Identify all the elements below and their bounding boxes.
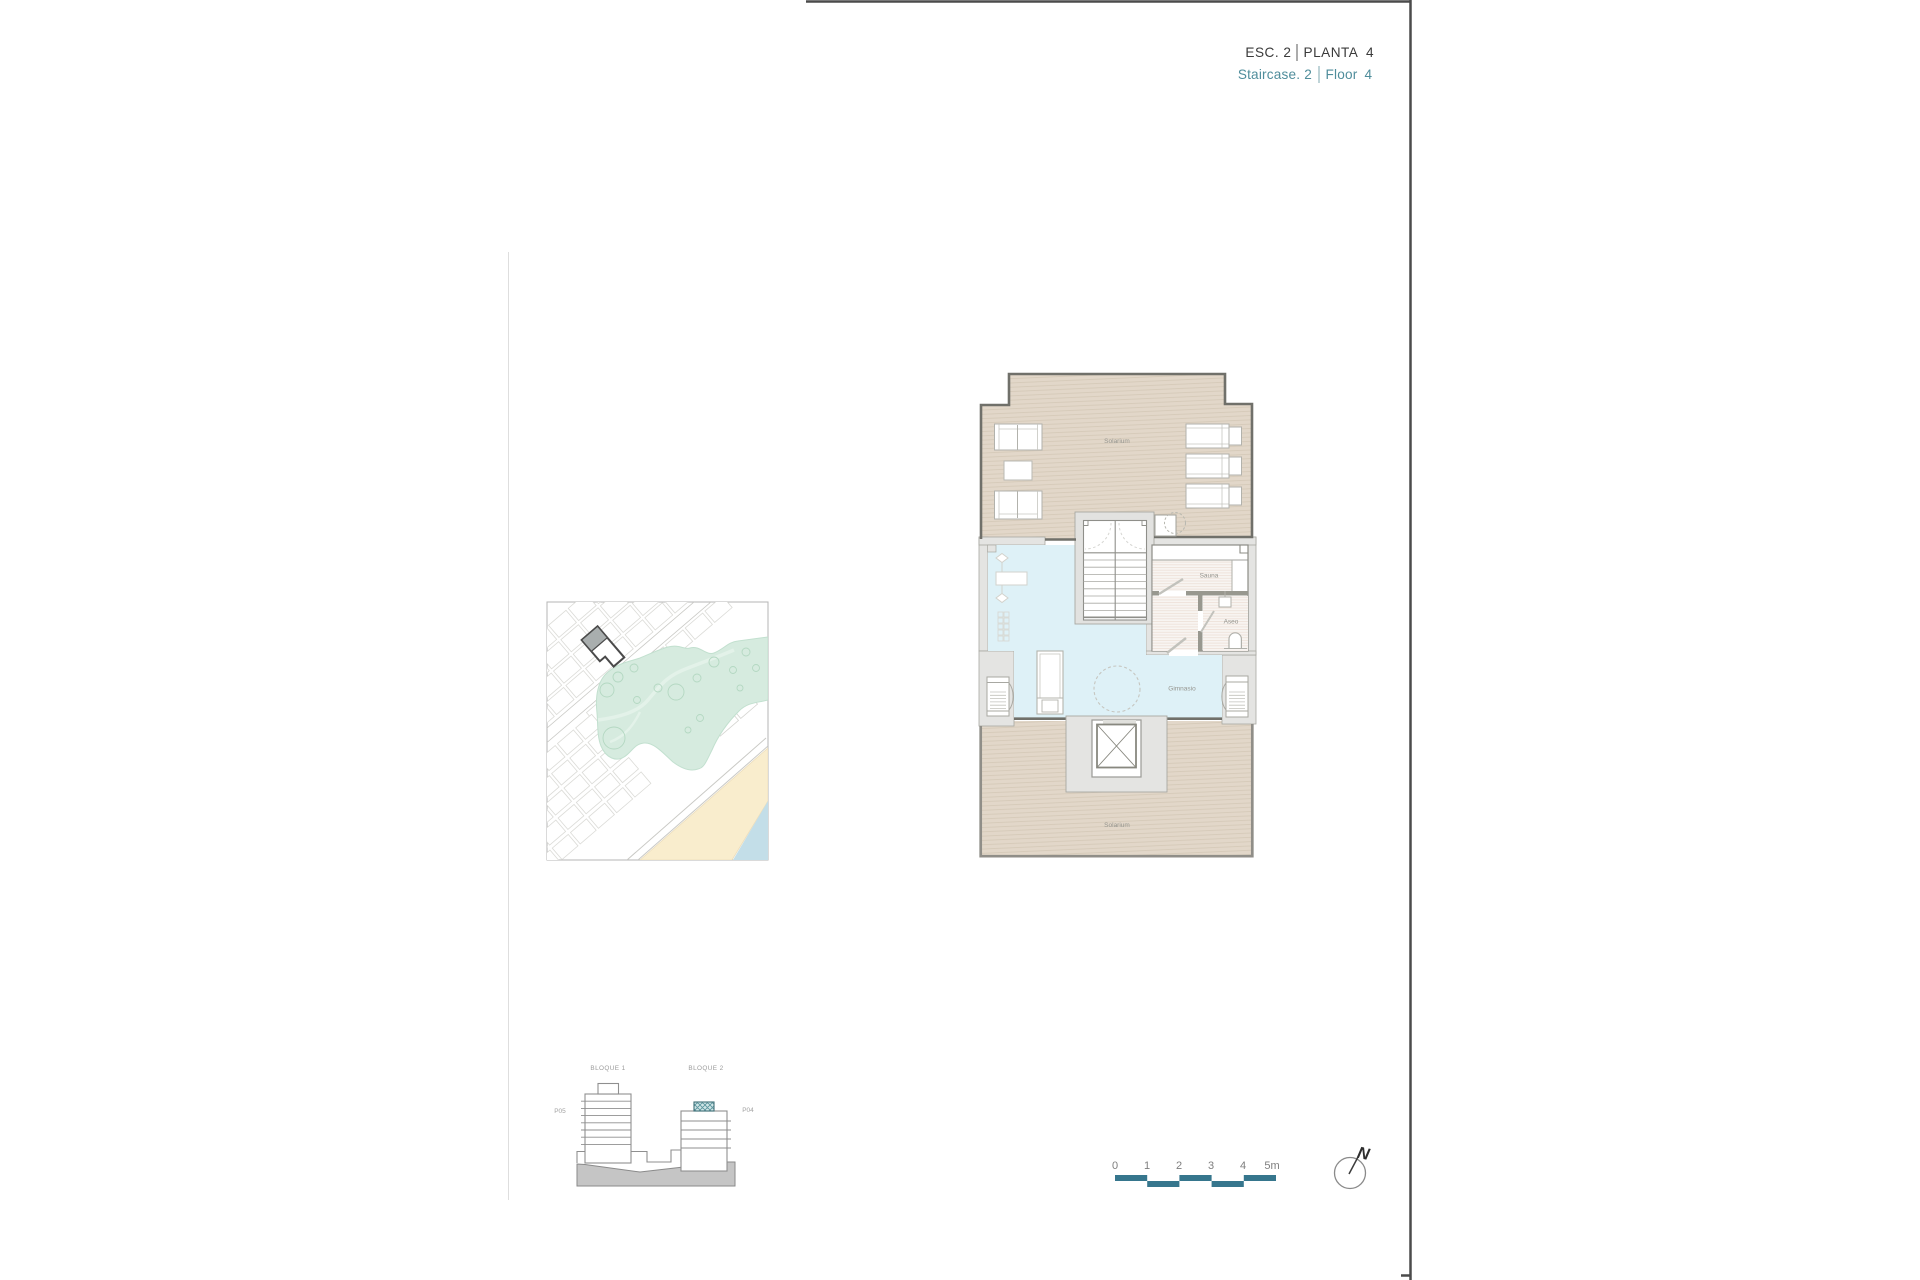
svg-text:1: 1 xyxy=(1144,1160,1150,1172)
svg-text:Aseo: Aseo xyxy=(1224,619,1239,626)
svg-text:2: 2 xyxy=(1176,1160,1182,1172)
svg-text:Gimnasio: Gimnasio xyxy=(1168,686,1196,693)
svg-text:0: 0 xyxy=(1112,1160,1118,1172)
svg-text:ESC. 2: ESC. 2 xyxy=(1245,45,1291,60)
svg-text:4: 4 xyxy=(1366,45,1374,60)
svg-text:PLANTA: PLANTA xyxy=(1304,45,1359,60)
svg-text:4: 4 xyxy=(1365,67,1373,82)
svg-text:BLOQUE 2: BLOQUE 2 xyxy=(688,1065,723,1072)
svg-text:Sauna: Sauna xyxy=(1200,573,1219,580)
svg-text:Staircase. 2: Staircase. 2 xyxy=(1238,67,1312,82)
svg-text:Floor: Floor xyxy=(1326,67,1358,82)
svg-text:Solarium: Solarium xyxy=(1104,822,1130,829)
svg-text:Solarium: Solarium xyxy=(1104,438,1130,445)
svg-text:5m: 5m xyxy=(1264,1160,1279,1172)
svg-text:P04: P04 xyxy=(742,1107,754,1114)
svg-text:P05: P05 xyxy=(554,1108,566,1115)
svg-text:BLOQUE 1: BLOQUE 1 xyxy=(590,1065,625,1072)
svg-text:3: 3 xyxy=(1208,1160,1214,1172)
svg-text:4: 4 xyxy=(1240,1160,1246,1172)
